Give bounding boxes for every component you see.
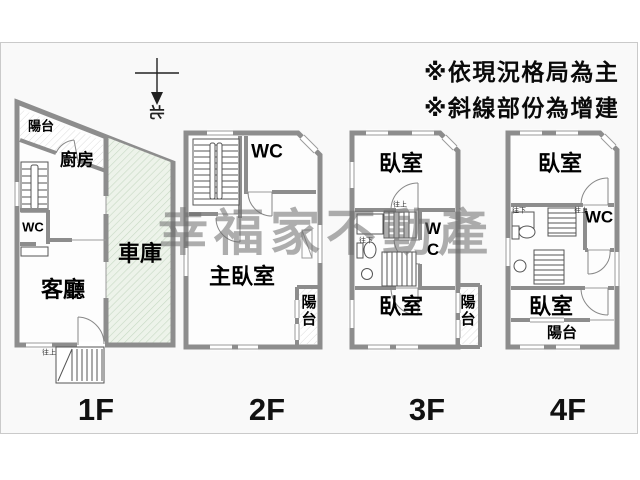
- floor1-kitchen-label: 廚房: [60, 152, 94, 169]
- floor4-bedroom-top-label: 臥室: [538, 153, 582, 175]
- floor4-wc-label: WC: [585, 209, 613, 226]
- floor3-balcony-label: 陽台: [460, 294, 475, 328]
- floor3-bedroom-bottom-label: 臥室: [379, 296, 423, 318]
- floor4-balcony-label: 陽台: [547, 326, 577, 341]
- floor1-stair-label: 往上: [42, 350, 56, 357]
- floor4-stair-up-label: 往上: [574, 208, 588, 215]
- north-arrow-icon: [135, 58, 179, 105]
- floor1-garage-label: 車庫: [118, 243, 162, 265]
- kitchen-counter: [21, 162, 48, 212]
- floor4-number-label: 4F: [550, 392, 586, 428]
- north-label: 北: [147, 104, 168, 119]
- entry-stairs: [56, 347, 104, 383]
- floor3-number-label: 3F: [409, 392, 445, 428]
- floor1-living-label: 客廳: [41, 279, 85, 301]
- floor1-number-label: 1F: [78, 392, 114, 428]
- floor2-balcony-label: 陽台: [301, 294, 316, 328]
- floor2-number-label: 2F: [249, 392, 285, 428]
- note-line2: ※斜線部份為增建: [424, 89, 619, 123]
- floor4-stair-down-label: 往下: [512, 208, 526, 215]
- watermark: 幸福家不動產: [158, 208, 494, 258]
- floor3-bedroom-top-label: 臥室: [379, 153, 423, 175]
- floor4-bedroom-bottom-label: 臥室: [529, 296, 573, 318]
- floor-plan-image: 北 ※依現況格局為主 ※斜線部份為增建 陽台 廚房 WC 客廳 車庫 往上 WC…: [0, 0, 640, 480]
- floor2-master-bedroom-label: 主臥室: [209, 266, 275, 288]
- note-line1: ※依現況格局為主: [424, 53, 619, 87]
- stairs: [193, 139, 239, 205]
- floor1-wc-label: WC: [22, 221, 44, 234]
- floor1-balcony-label: 陽台: [28, 120, 54, 133]
- floor2-wc-label: WC: [251, 143, 283, 162]
